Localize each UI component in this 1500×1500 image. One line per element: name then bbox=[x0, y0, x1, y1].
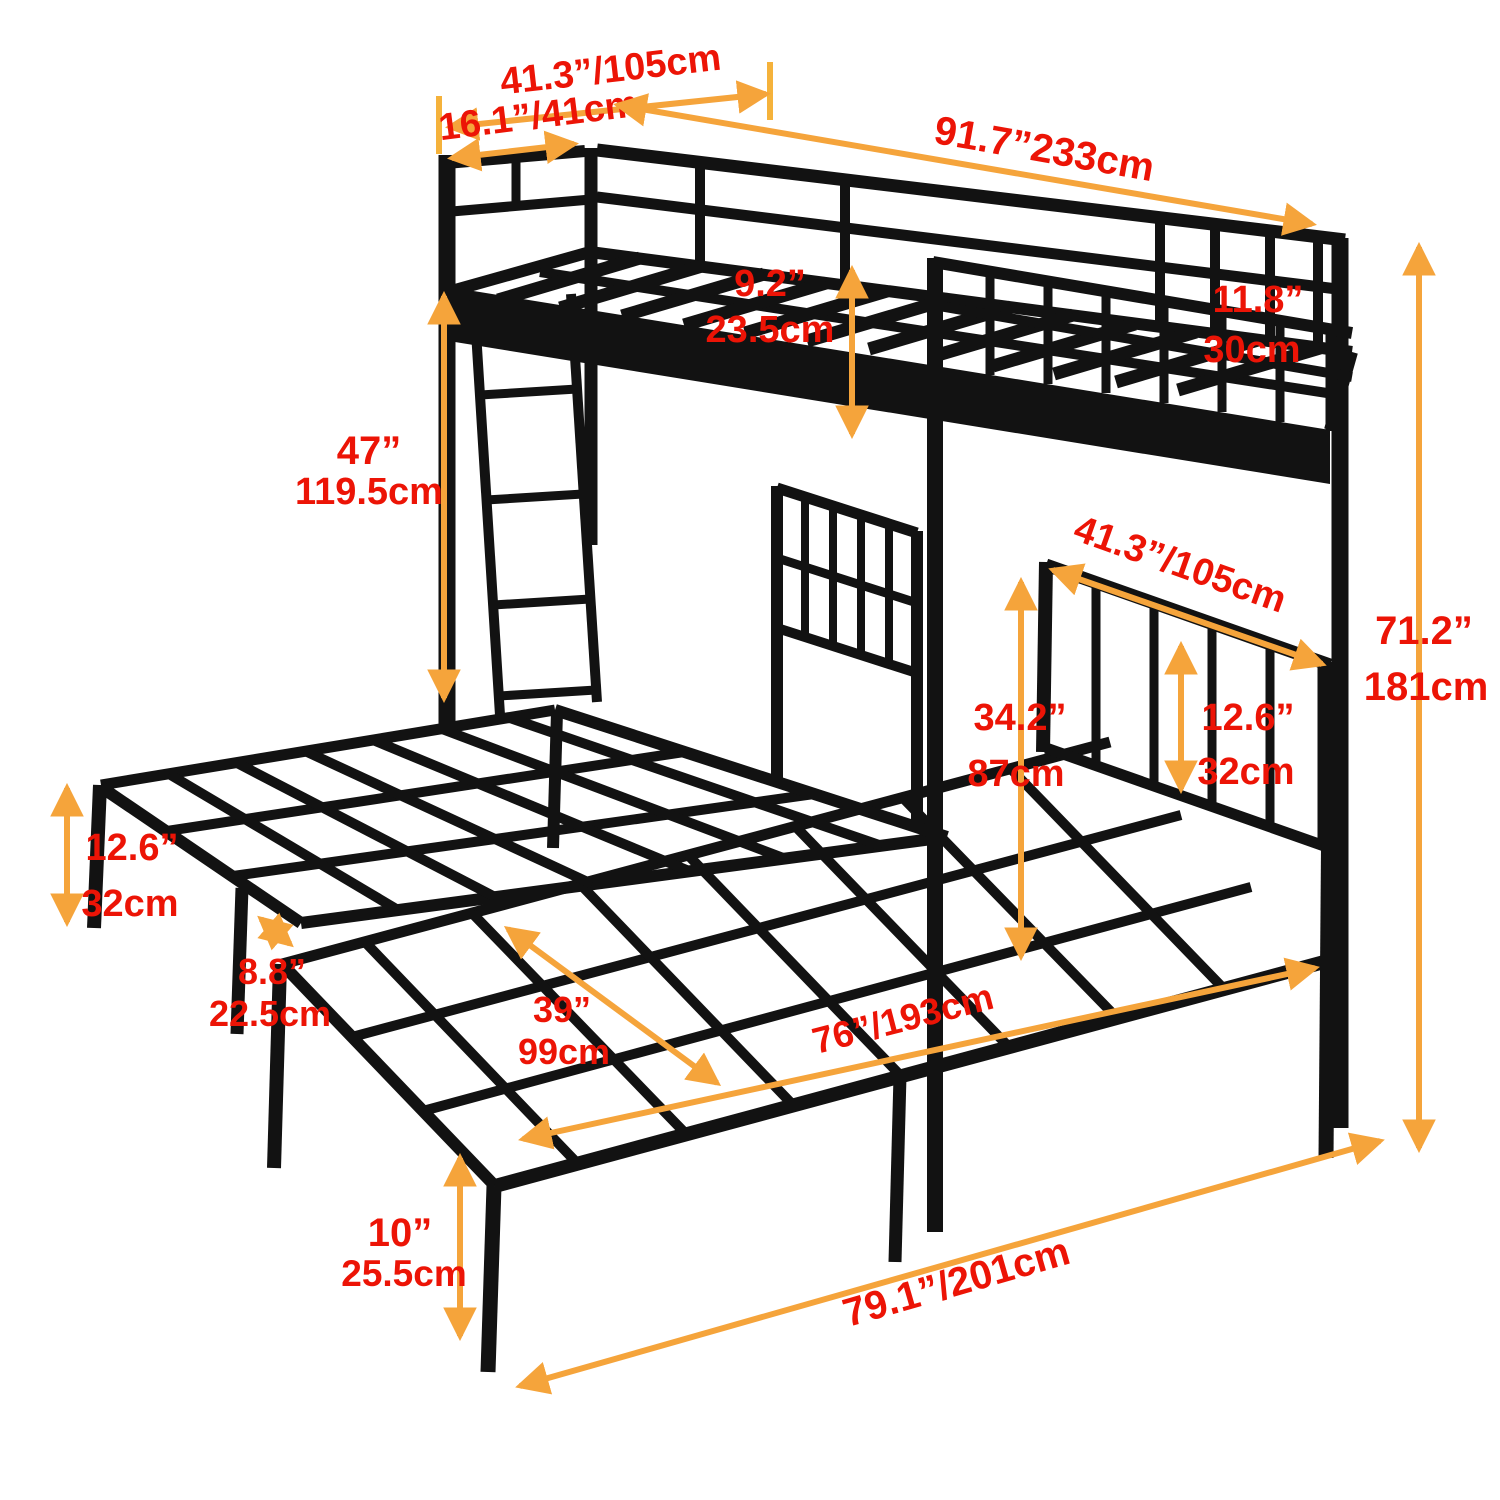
label-leg-height-cm: 25.5cm bbox=[341, 1253, 467, 1294]
label-gap-between-beds-cm: 22.5cm bbox=[209, 993, 331, 1034]
background bbox=[0, 0, 1500, 1500]
label-under-bunk-clearance-in: 47” bbox=[337, 429, 402, 473]
label-upper-guardrail-height-in: 11.8” bbox=[1213, 279, 1304, 321]
label-upper-guardrail-height-cm: 30cm bbox=[1203, 329, 1300, 371]
label-lower-bed-width-cm: 99cm bbox=[518, 1031, 610, 1072]
label-lower-bed-width-in: 39” bbox=[533, 989, 591, 1030]
label-upper-frame-thickness-in: 9.2” bbox=[734, 263, 806, 305]
diagram-canvas: 41.3”/105cm 16.1”/41cm 91.7”233cm 9.2” 2… bbox=[0, 0, 1500, 1500]
label-headboard-top-section-cm: 32cm bbox=[1197, 751, 1294, 793]
bunk-bed-dimension-diagram: 41.3”/105cm 16.1”/41cm 91.7”233cm 9.2” 2… bbox=[0, 0, 1500, 1500]
label-overall-height-in: 71.2” bbox=[1375, 609, 1473, 653]
label-platform-height-in: 12.6” bbox=[86, 827, 179, 869]
label-under-bunk-clearance-cm: 119.5cm bbox=[295, 471, 443, 513]
label-headboard-height-cm: 87cm bbox=[967, 753, 1064, 795]
label-overall-height-cm: 181cm bbox=[1364, 665, 1489, 709]
label-headboard-height-in: 34.2” bbox=[974, 697, 1067, 739]
label-headboard-top-section-in: 12.6” bbox=[1202, 697, 1295, 739]
label-upper-frame-thickness-cm: 23.5cm bbox=[706, 309, 835, 351]
label-leg-height-in: 10” bbox=[368, 1211, 433, 1255]
label-gap-between-beds-in: 8.8” bbox=[238, 951, 306, 992]
label-platform-height-cm: 32cm bbox=[81, 883, 178, 925]
